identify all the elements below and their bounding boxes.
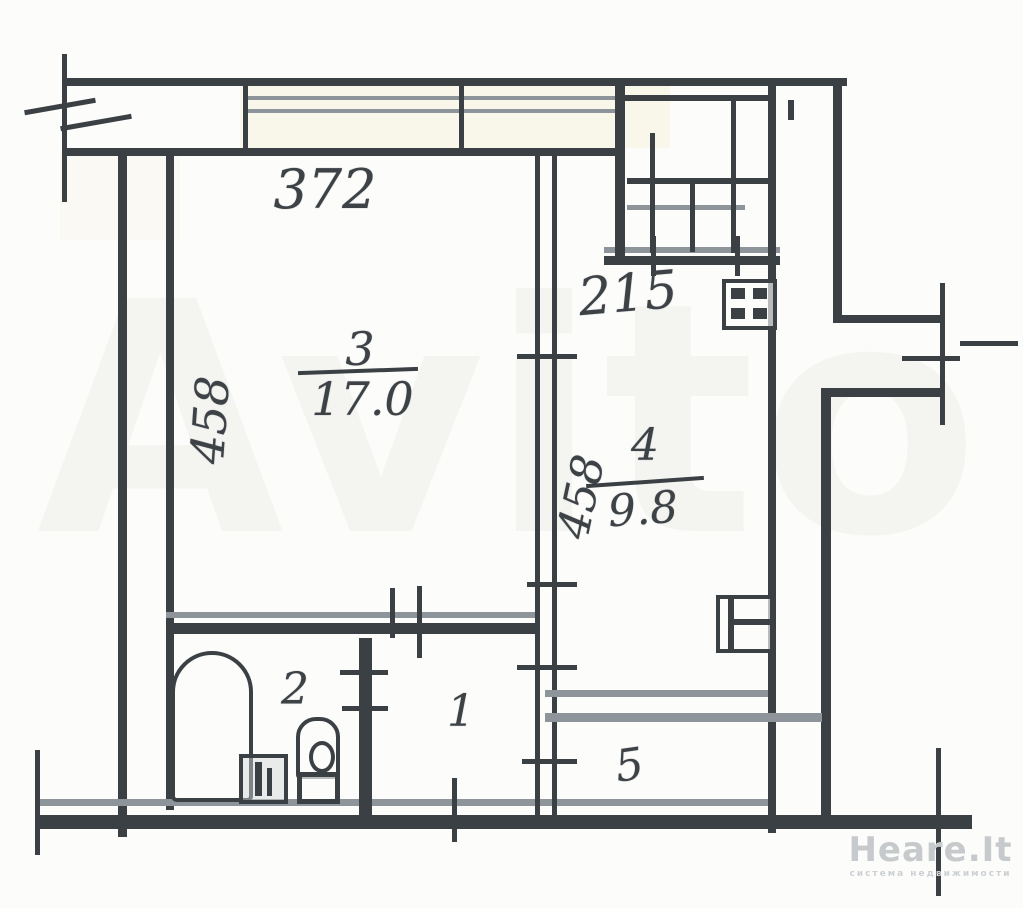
break-mark-dash bbox=[960, 341, 1018, 346]
door-tick bbox=[340, 670, 388, 675]
washbasin-detail bbox=[255, 762, 262, 796]
balcony-top-inner-line bbox=[625, 95, 772, 101]
toilet-icon bbox=[296, 717, 340, 779]
window-glazing-line bbox=[247, 96, 617, 100]
washbasin-icon bbox=[239, 754, 288, 804]
door-tick bbox=[417, 586, 422, 658]
break-mark-right bbox=[940, 283, 945, 425]
dimension-top: 372 bbox=[240, 163, 410, 217]
door-tick bbox=[522, 759, 577, 764]
window-jamb-tick bbox=[459, 80, 464, 154]
stove-burner bbox=[753, 308, 767, 319]
washbasin-detail bbox=[267, 768, 272, 796]
toilet-tank bbox=[297, 772, 340, 804]
break-mark-dash bbox=[24, 98, 96, 115]
dimension-left-vertical: 458 bbox=[180, 348, 240, 491]
stove-burner bbox=[731, 288, 745, 299]
right-exterior-wall-lower bbox=[821, 388, 831, 820]
kitchen-balcony-wall bbox=[545, 713, 822, 722]
room-living-area: 17.0 bbox=[295, 376, 430, 422]
door-tick bbox=[527, 582, 577, 587]
living-kitchen-wall-left bbox=[535, 148, 540, 819]
room-living-number: 3 bbox=[300, 326, 420, 372]
top-exterior-wall-outer bbox=[65, 78, 847, 86]
bottom-exterior-wall-inner bbox=[38, 799, 770, 806]
dimension-kitchen: 215 bbox=[556, 262, 700, 326]
right-notch-top-wall bbox=[833, 315, 945, 323]
room-bathroom-number: 2 bbox=[270, 668, 320, 712]
door-tick bbox=[390, 588, 395, 638]
balcony-mullion bbox=[650, 133, 655, 253]
room-balcony-number: 5 bbox=[599, 740, 660, 791]
kitchen-sink-icon bbox=[716, 595, 774, 653]
door-tick bbox=[517, 665, 577, 670]
floor-plan: Avito bbox=[0, 0, 1023, 908]
window-jamb-tick bbox=[452, 778, 457, 842]
window-glazing-line bbox=[247, 109, 617, 113]
living-bottom-wall bbox=[166, 623, 540, 634]
left-exterior-wall-outer bbox=[118, 148, 127, 837]
break-mark-bottom-left bbox=[35, 750, 40, 855]
balcony-rail-line bbox=[627, 205, 745, 210]
stove-burner bbox=[753, 288, 767, 299]
balcony-top-left-wall bbox=[615, 82, 625, 260]
balcony-mullion bbox=[690, 178, 695, 252]
kitchen-balcony-wall-line bbox=[545, 690, 768, 697]
window-jamb-tick bbox=[243, 80, 248, 154]
balcony-mullion bbox=[731, 95, 736, 253]
right-exterior-wall-upper bbox=[833, 82, 842, 322]
stove-burner bbox=[731, 308, 745, 319]
watermark-text: Avito bbox=[0, 235, 1023, 607]
room-hall-number: 1 bbox=[436, 690, 486, 734]
door-tick bbox=[788, 100, 794, 120]
living-bottom-wall-line bbox=[166, 612, 540, 618]
stove-icon bbox=[722, 279, 777, 330]
site-logo-tagline: система недвижимости bbox=[838, 869, 1023, 879]
balcony-rail-line bbox=[627, 178, 772, 184]
door-tick bbox=[342, 706, 388, 711]
bathroom-hall-wall bbox=[359, 638, 372, 818]
bottom-exterior-wall-outer bbox=[38, 815, 972, 829]
door-tick bbox=[517, 354, 577, 359]
sink-divider bbox=[734, 619, 770, 625]
right-notch-bottom-wall bbox=[828, 388, 945, 397]
toilet-bowl bbox=[309, 741, 335, 773]
break-mark-dash bbox=[60, 114, 132, 131]
break-mark-dash bbox=[902, 356, 960, 361]
site-logo: Heare.It bbox=[838, 833, 1023, 867]
